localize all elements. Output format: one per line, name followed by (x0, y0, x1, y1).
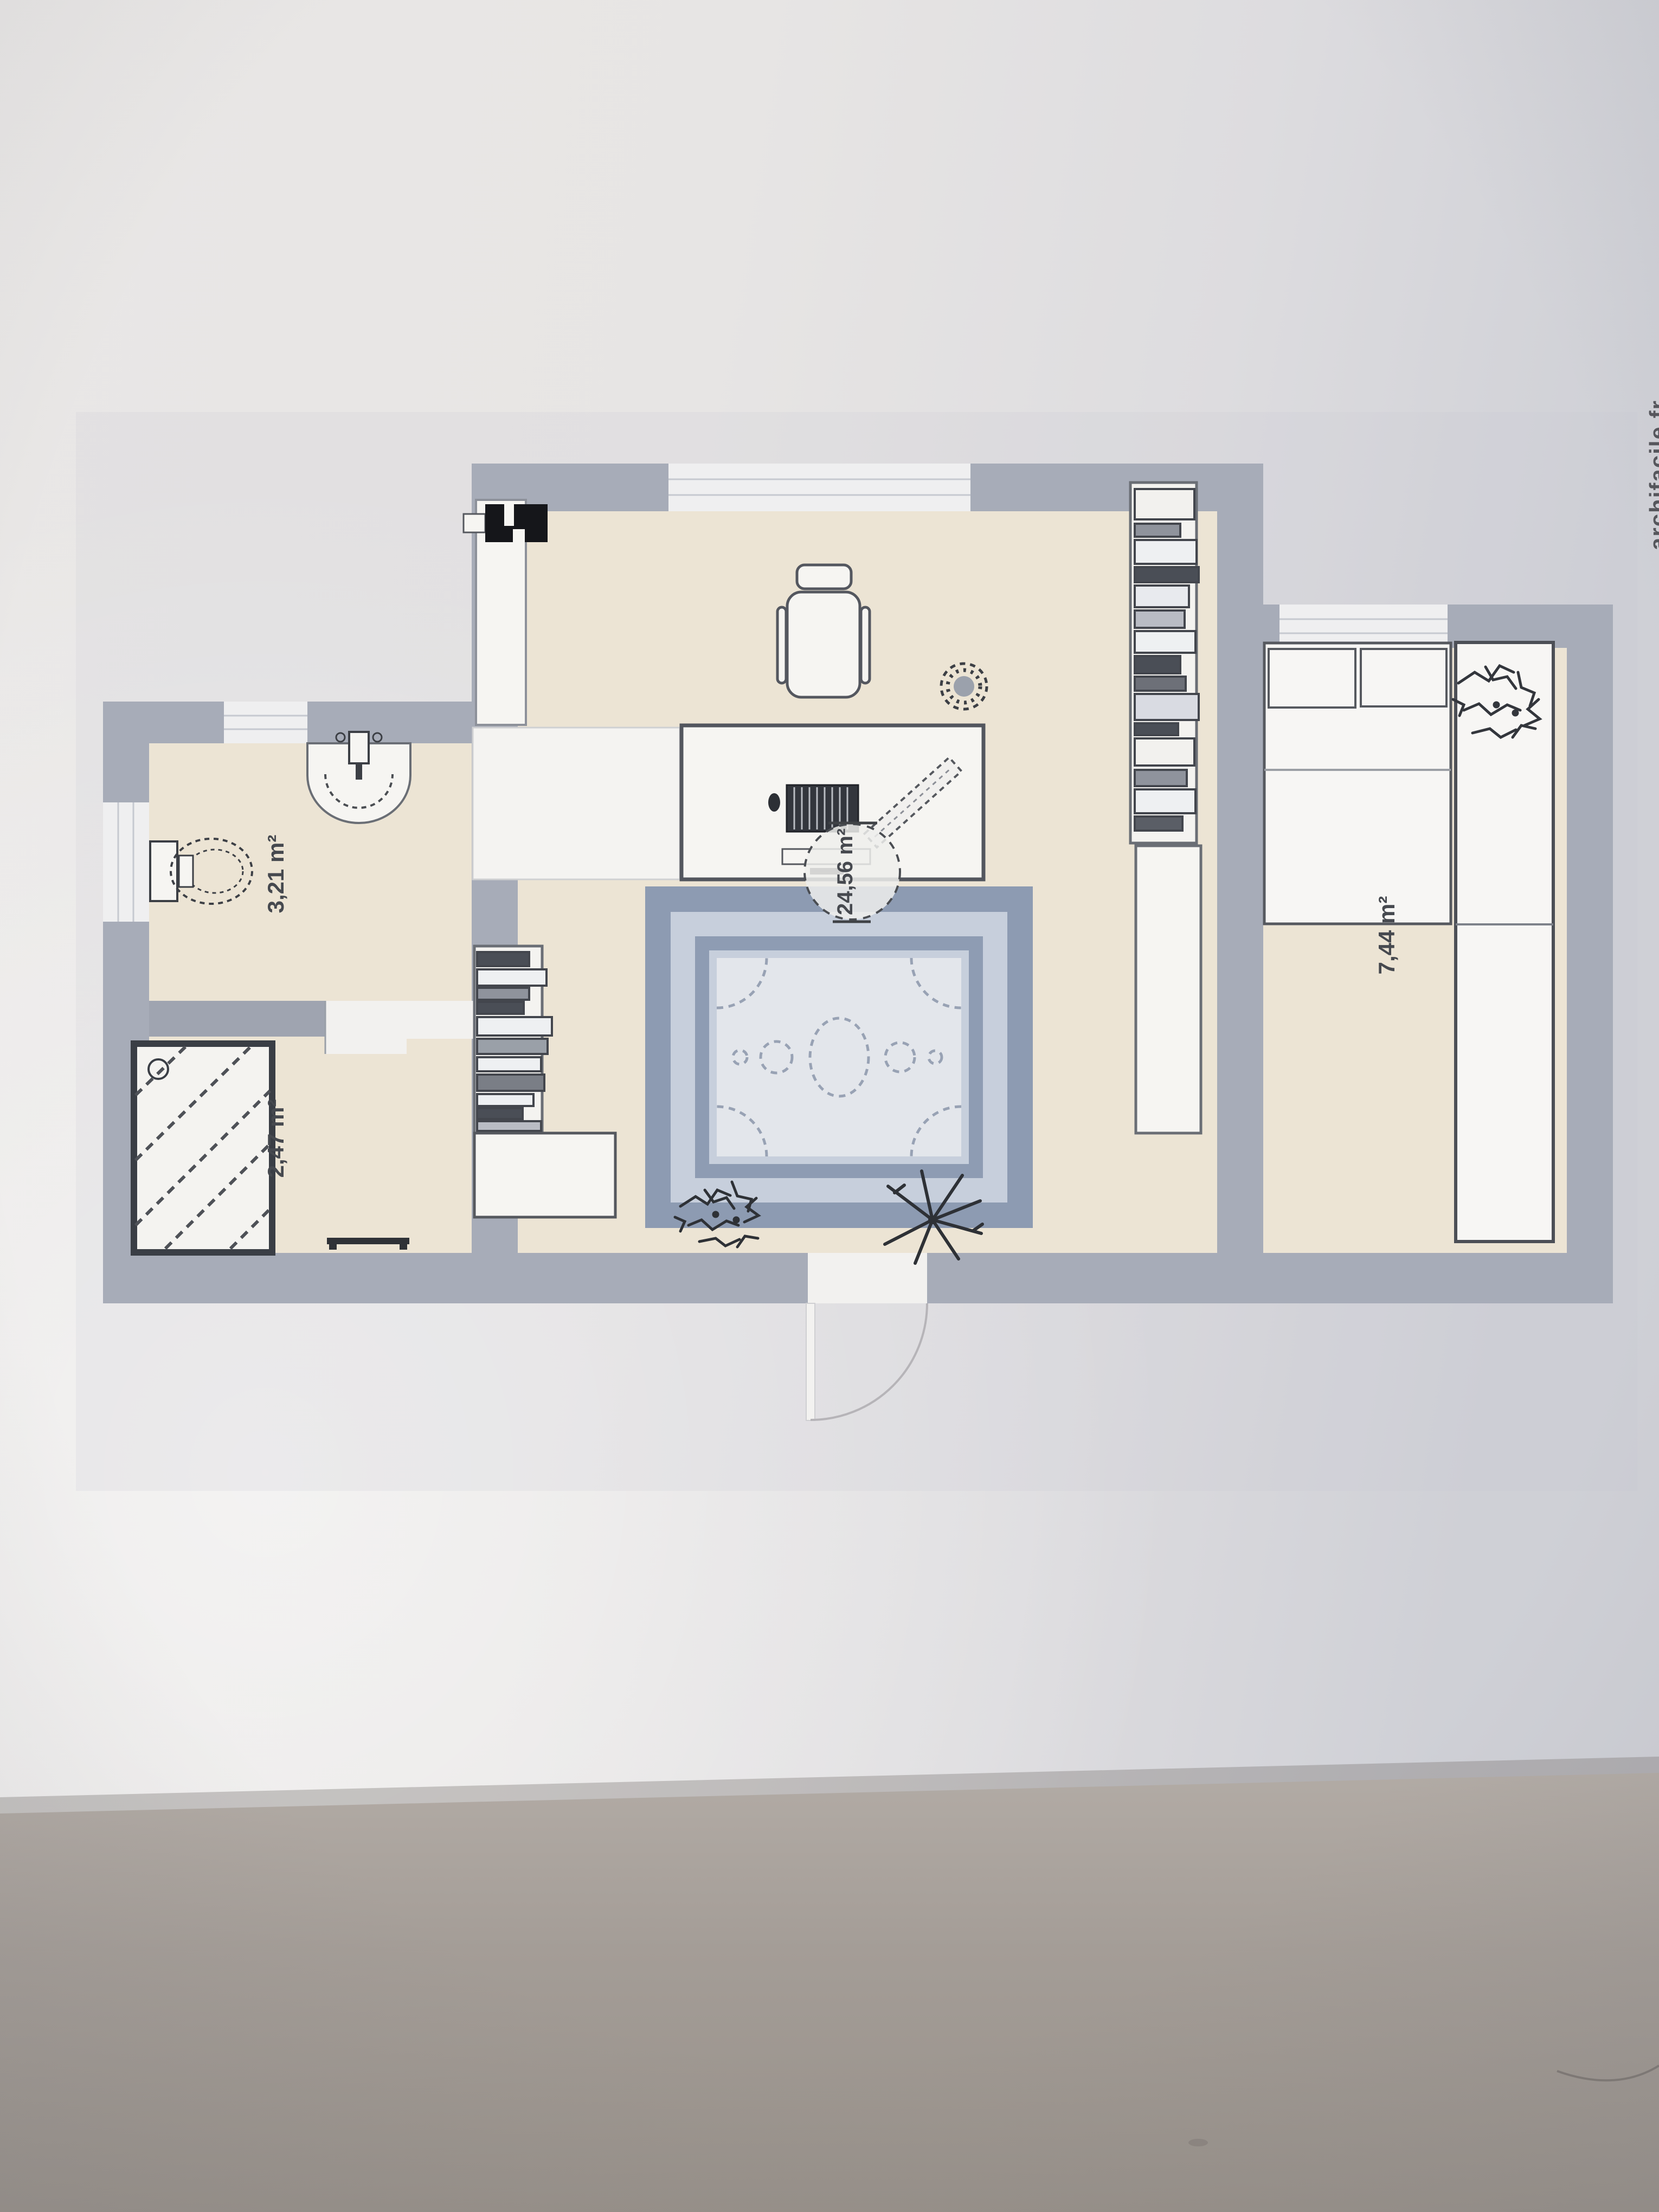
photo-of-floor-plan: 24,56 m² 3,21 m² 2,47 m² 7,44 m² archifa… (0, 0, 1659, 2212)
floor-plan-photo: 24,56 m² 3,21 m² 2,47 m² 7,44 m² archifa… (0, 0, 1659, 2212)
photo-vignette (0, 0, 1659, 2212)
